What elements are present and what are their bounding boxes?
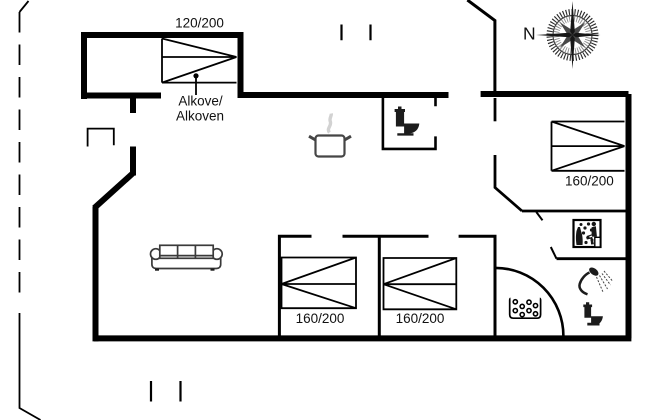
svg-text:120/200: 120/200 [175,16,224,31]
svg-text:160/200: 160/200 [396,311,445,326]
svg-text:Alkove/: Alkove/ [178,94,223,109]
svg-text:160/200: 160/200 [565,174,614,189]
svg-text:Alkoven: Alkoven [176,109,224,124]
svg-text:N: N [523,24,536,44]
svg-text:160/200: 160/200 [296,311,345,326]
